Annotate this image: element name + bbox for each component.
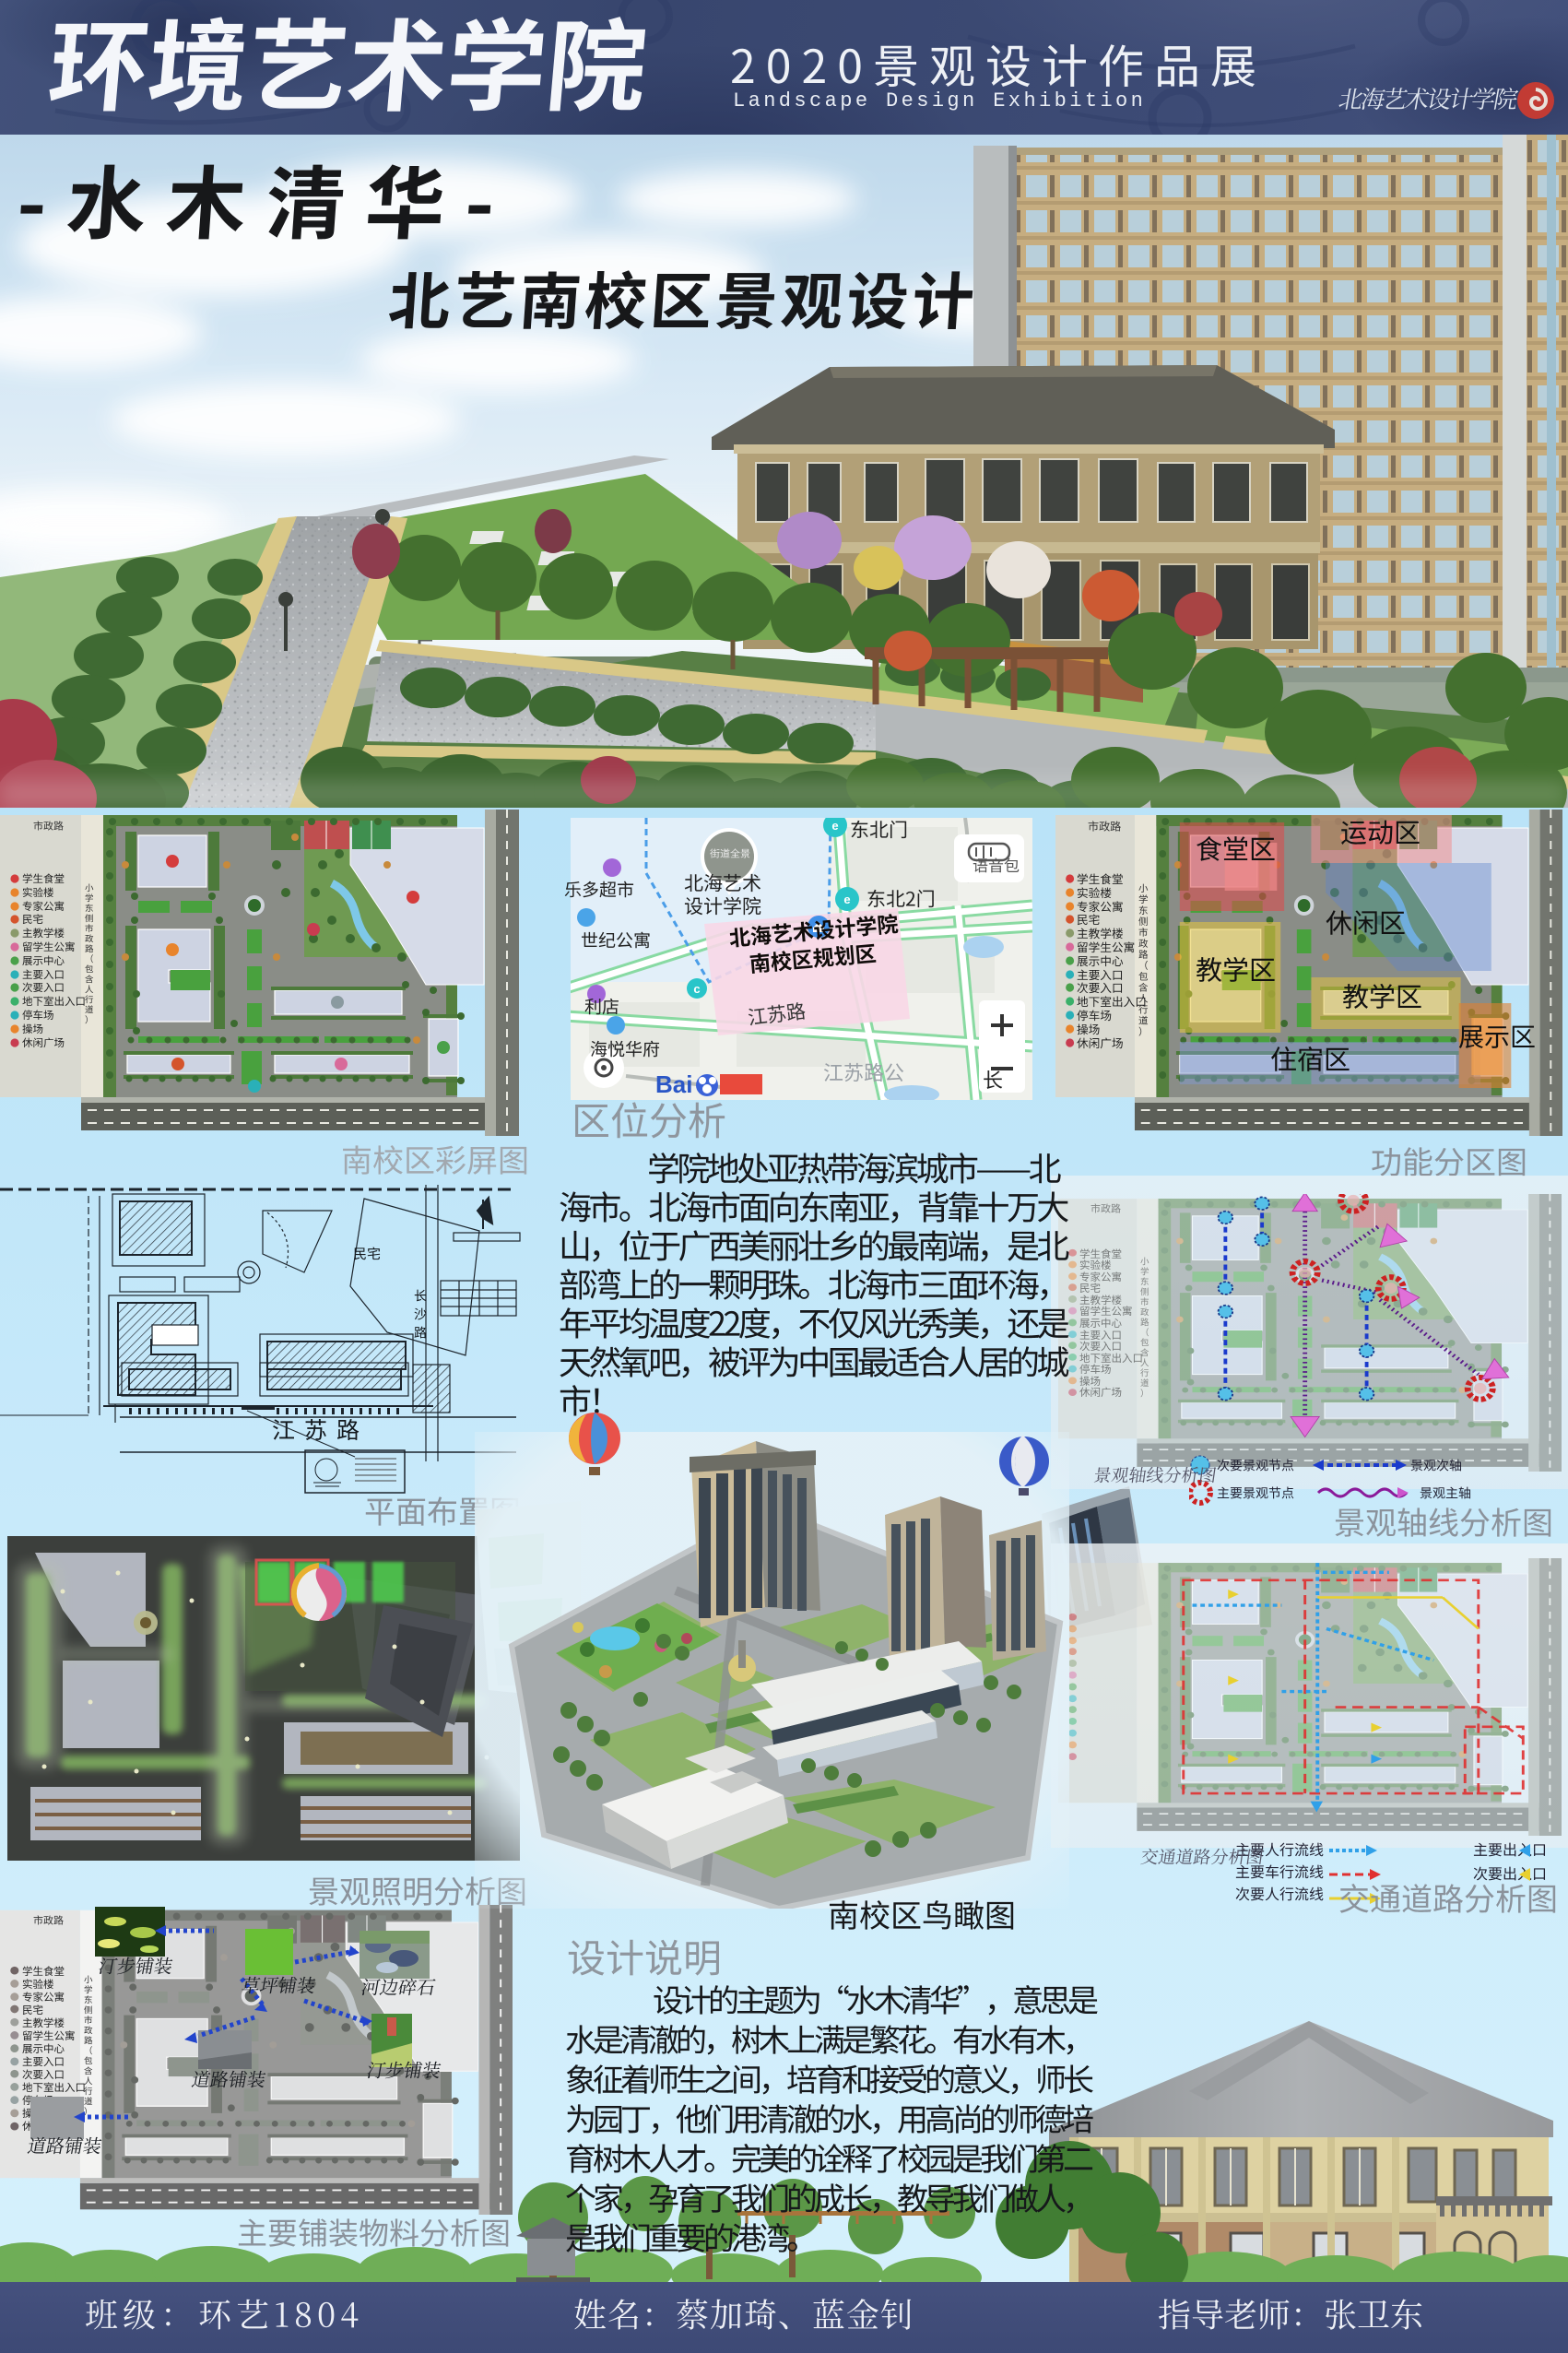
- svg-text:Bai: Bai: [655, 1070, 692, 1098]
- svg-text:e: e: [843, 893, 850, 906]
- svg-text:e: e: [831, 819, 838, 833]
- svg-text:c: c: [693, 982, 700, 996]
